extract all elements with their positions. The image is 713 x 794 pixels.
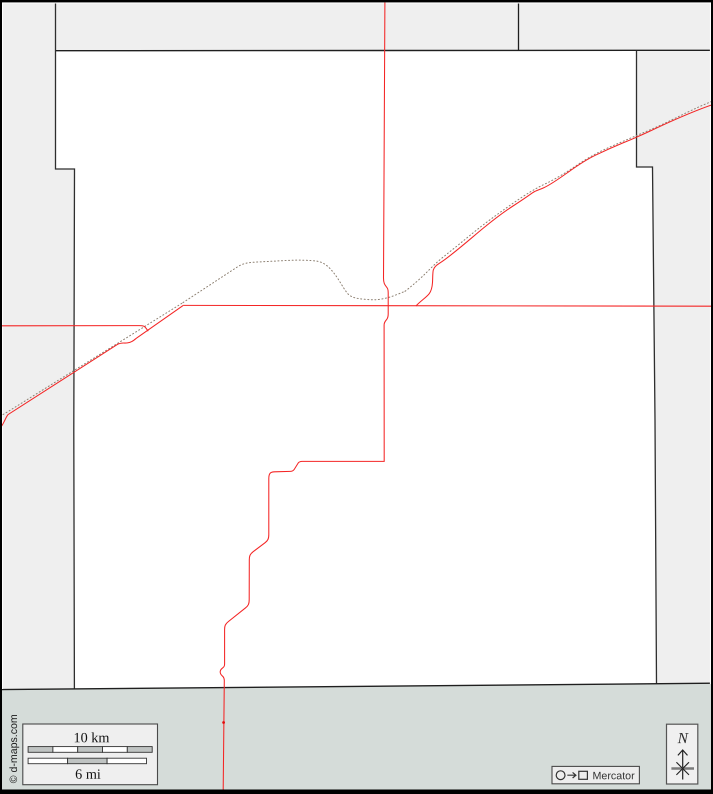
svg-text:© d-maps.com: © d-maps.com: [8, 714, 20, 783]
svg-text:10 km: 10 km: [74, 730, 110, 746]
svg-text:N: N: [677, 730, 690, 747]
svg-text:6 mi: 6 mi: [75, 767, 101, 783]
svg-text:Mercator: Mercator: [592, 770, 635, 782]
